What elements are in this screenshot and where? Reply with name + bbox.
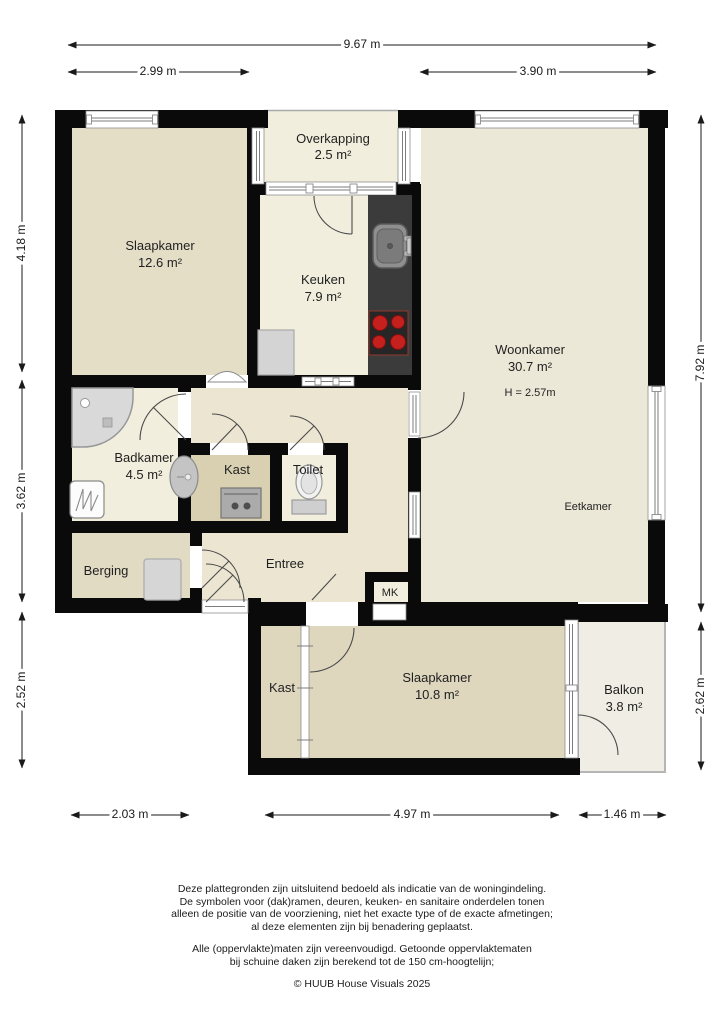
glass-panel-entree-woonkamer [409,492,420,538]
kitchen-sink-icon [373,224,411,268]
footer: Deze plattegronden zijn uitsluitend bedo… [0,883,724,991]
label-overkapping-area: 2.5 m² [315,147,353,162]
cooktop-icon [369,311,408,355]
boiler-icon [221,488,261,518]
note-line: Alle (oppervlakte)maten zijn vereenvoudi… [0,943,724,956]
svg-text:4.97 m: 4.97 m [394,807,431,821]
dimension-bottom-left: 2.03 m [71,807,189,821]
svg-text:9.67 m: 9.67 m [344,37,381,51]
svg-text:2.03 m: 2.03 m [112,807,149,821]
mk-door-panel [373,604,406,620]
dimension-top-right: 3.90 m [420,64,656,78]
label-badkamer: Badkamer [114,450,174,465]
svg-text:3.62 m: 3.62 m [14,473,28,510]
laundry-basin-icon [70,481,104,518]
svg-text:4.18 m: 4.18 m [14,225,28,262]
label-overkapping: Overkapping [296,131,370,146]
window-woonkamer-right [648,386,665,520]
disclaimer-line: alleen de positie van de voorziening, ni… [0,908,724,921]
label-berging: Berging [84,563,129,578]
washbasin-icon [170,456,198,498]
label-woonkamer-height: H = 2.57m [504,387,555,399]
floorplan-canvas: Slaapkamer 12.6 m² Overkapping 2.5 m² Ke… [0,0,724,1024]
disclaimer-line: Deze plattegronden zijn uitsluitend bedo… [0,883,724,896]
disclaimer-line: al deze elementen zijn bij benadering ge… [0,921,724,934]
dimension-left-middle: 3.62 m [14,380,28,602]
fridge-icon [258,330,294,375]
label-slaapkamer-tl-area: 12.6 m² [138,255,183,270]
svg-text:2.52 m: 2.52 m [14,672,28,709]
disclaimer-line: De symbolen voor (dak)ramen, deuren, keu… [0,896,724,909]
label-eetkamer: Eetkamer [564,501,611,513]
label-entree: Entree [266,556,304,571]
label-slaapkamer-bottom: Slaapkamer [402,670,472,685]
window-overkapping-left [252,128,264,184]
disclaimer-text: Deze plattegronden zijn uitsluitend bedo… [0,883,724,933]
dimension-bottom-right: 1.46 m [579,807,666,821]
label-woonkamer-area: 30.7 m² [508,359,553,374]
window-keuken-bottom [302,377,354,386]
label-kast-bottom: Kast [269,680,295,695]
front-door-panel [202,600,248,613]
measurement-note: Alle (oppervlakte)maten zijn vereenvoudi… [0,943,724,968]
window-woonkamer-top [475,111,639,128]
note-line: bij schuine daken zijn berekend tot de 1… [0,956,724,969]
floorplan-page: Slaapkamer 12.6 m² Overkapping 2.5 m² Ke… [0,0,724,1024]
dimension-top-left: 2.99 m [68,64,249,78]
svg-text:2.62 m: 2.62 m [693,678,707,715]
dimension-left-top: 4.18 m [14,115,28,372]
label-badkamer-area: 4.5 m² [126,467,164,482]
svg-text:2.99 m: 2.99 m [140,64,177,78]
kitchen-counter [368,195,412,375]
label-balkon-area: 3.8 m² [606,699,644,714]
label-slaapkamer-tl: Slaapkamer [125,238,195,253]
dimension-bottom-middle: 4.97 m [265,807,559,821]
sliding-door-balkon [565,620,578,758]
dimension-top-total: 9.67 m [68,37,656,51]
glass-door-woonkamer [409,392,420,436]
svg-text:7.92 m: 7.92 m [693,345,707,382]
svg-text:1.46 m: 1.46 m [604,807,641,821]
window-overkapping-right [398,128,410,184]
window-slaapkamer-top [86,111,158,128]
sliding-door-keuken [266,182,396,195]
label-slaapkamer-bottom-area: 10.8 m² [415,687,460,702]
washing-machine-icon [144,559,181,600]
dimension-left-bottom: 2.52 m [14,612,28,768]
svg-text:3.90 m: 3.90 m [520,64,557,78]
copyright: © HUUB House Visuals 2025 [0,978,724,991]
label-balkon: Balkon [604,682,644,697]
label-toilet: Toilet [293,462,324,477]
label-keuken: Keuken [301,272,345,287]
label-kast: Kast [224,462,250,477]
label-woonkamer: Woonkamer [495,342,566,357]
room-overkapping [264,110,398,182]
label-mk: MK [382,587,399,599]
dimension-right-top: 7.92 m [693,115,707,612]
dimension-right-bottom: 2.62 m [693,622,707,770]
label-keuken-area: 7.9 m² [305,289,343,304]
